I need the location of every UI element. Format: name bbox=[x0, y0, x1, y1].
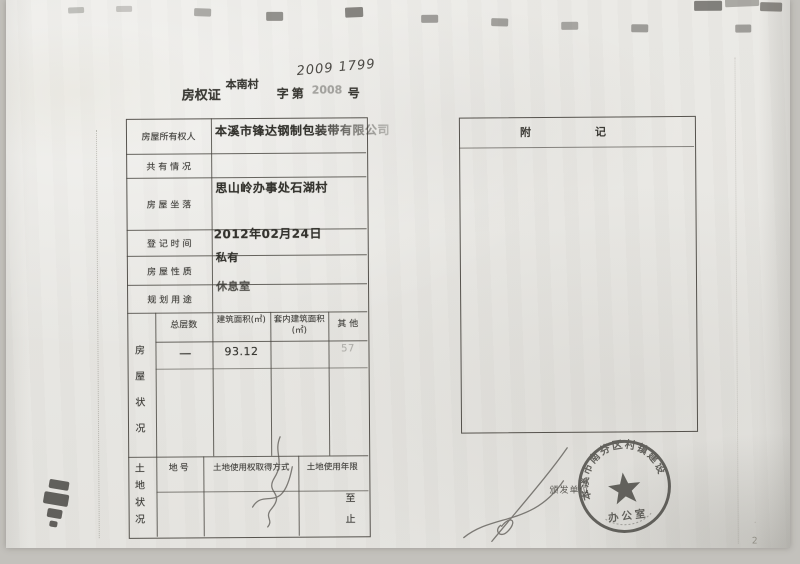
page-mark: · bbox=[754, 519, 757, 529]
scanned-property-certificate: { "header": { "doc_type": "房权证", "region… bbox=[0, 0, 800, 561]
certificate-page: 房权证 本南村 字第 2008 2009 1799 号 bbox=[0, 0, 800, 564]
row-label-nature: 房 屋 性 质 bbox=[129, 264, 210, 278]
number-suffix-label: 号 bbox=[348, 84, 360, 101]
land-term-to: 止 bbox=[346, 510, 356, 525]
row-label-owner: 房屋所有权人 bbox=[128, 129, 209, 143]
row-label-usage: 规 划 用 途 bbox=[129, 292, 210, 306]
fold-line-right bbox=[734, 58, 738, 544]
row-label-coownership: 共 有 情 况 bbox=[128, 159, 209, 173]
notes-title: 附记 bbox=[520, 123, 670, 140]
region-label: 本南村 bbox=[226, 76, 259, 92]
printed-number: 2008 bbox=[312, 83, 343, 96]
row-value-owner: 本溪市锋达钢制包装带有限公司 bbox=[215, 121, 390, 139]
value-other: 57 bbox=[328, 343, 367, 354]
col-inner-area: 套内建筑面积(㎡) bbox=[271, 315, 327, 337]
edge-stamp-mark bbox=[39, 478, 75, 532]
value-building-area: 93.12 bbox=[214, 345, 268, 358]
land-status-side-label: 土地状况 bbox=[130, 463, 145, 531]
series-label: 字第 bbox=[277, 85, 307, 102]
row-label-reg-date: 登 记 时 间 bbox=[129, 236, 210, 250]
handwritten-number: 2009 1799 bbox=[296, 57, 376, 79]
row-label-location: 房 屋 坐 落 bbox=[128, 197, 209, 211]
page-number: 2 bbox=[752, 537, 758, 547]
col-plot-number: 地号 bbox=[156, 463, 203, 475]
col-total-floors: 总层数 bbox=[155, 320, 212, 332]
value-total-floors: 一 bbox=[158, 345, 212, 362]
signature-near-seal-loop bbox=[498, 520, 513, 535]
row-value-reg-date: 2012年02月24日 bbox=[214, 225, 322, 243]
col-land-acquisition: 土地使用权取得方式 bbox=[204, 463, 298, 474]
row-value-usage: 休息室 bbox=[216, 278, 251, 294]
issuer-label: 颁发单位 bbox=[549, 483, 589, 496]
land-term-from: 至 bbox=[345, 489, 355, 504]
house-status-side-label: 房屋状况 bbox=[130, 345, 146, 449]
col-building-area: 建筑面积(㎡) bbox=[213, 315, 269, 326]
seal-center-text: 办公室 bbox=[607, 507, 649, 525]
col-land-term: 土地使用年限 bbox=[299, 462, 365, 473]
row-value-nature: 私有 bbox=[216, 249, 239, 265]
notes-box-border bbox=[459, 116, 698, 434]
scanner-background: 房权证 本南村 字第 2008 2009 1799 号 bbox=[0, 0, 800, 561]
seal-star-icon bbox=[607, 470, 643, 505]
row-value-location: 思山岭办事处石湖村 bbox=[215, 179, 328, 197]
doc-type-label: 房权证 bbox=[182, 84, 221, 103]
col-other: 其 他 bbox=[328, 319, 367, 331]
fold-line-left bbox=[96, 130, 100, 538]
